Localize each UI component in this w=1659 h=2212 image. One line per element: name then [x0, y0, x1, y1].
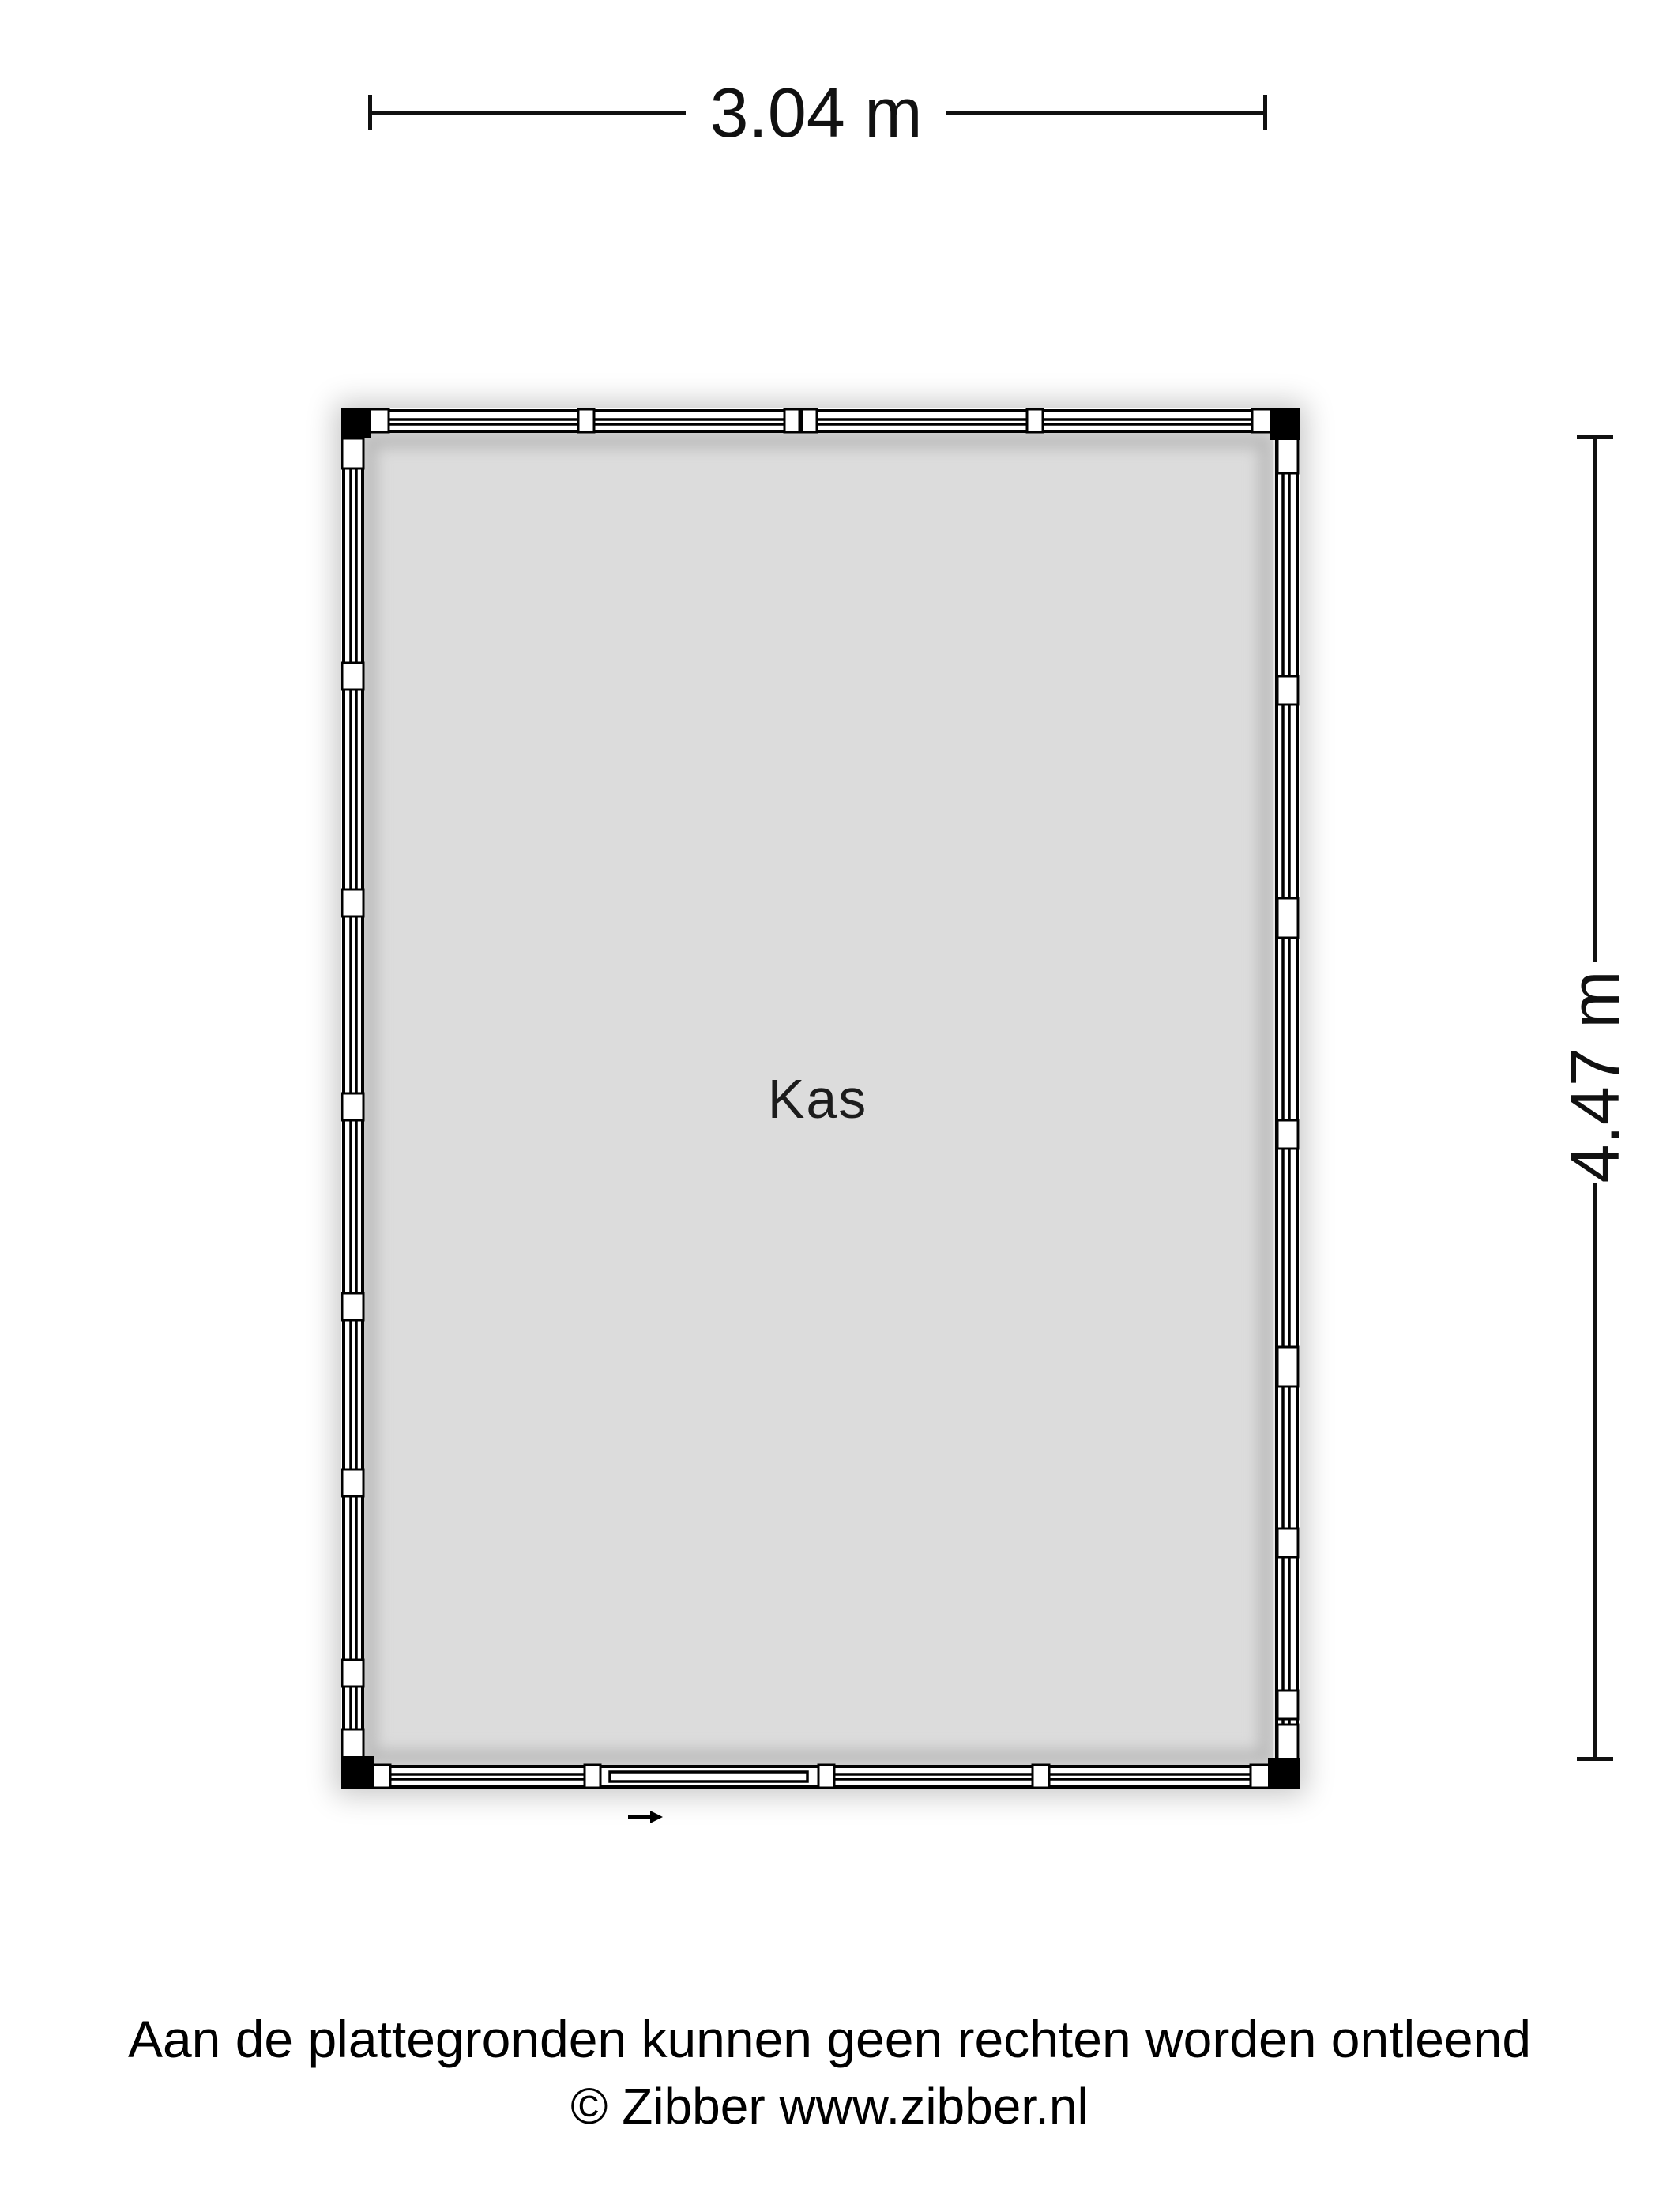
height-dimension-bottom-tick: [1577, 1757, 1613, 1761]
wall-left: [342, 437, 363, 1761]
width-dimension-line-right: [946, 111, 1264, 115]
corner-post-top-left: [341, 408, 371, 438]
corner-post-top-right: [1270, 408, 1300, 440]
footer-copyright: © Zibber www.zibber.nl: [0, 2081, 1659, 2131]
height-dimension-label: 4.47 m: [1560, 970, 1630, 1183]
corner-post-bottom-right: [1268, 1758, 1300, 1789]
width-dimension-right-tick: [1263, 95, 1267, 130]
height-dimension-line-top: [1593, 437, 1597, 962]
floor-plan-page: 3.04 m 4.47 m: [0, 0, 1659, 2212]
wall-top: [370, 409, 1271, 432]
wall-bottom: [370, 1765, 1271, 1788]
corner-post-bottom-left: [341, 1756, 374, 1789]
height-dimension-line-bottom: [1593, 1183, 1597, 1760]
room-label: Kas: [768, 1071, 868, 1127]
footer-disclaimer: Aan de plattegronden kunnen geen rechten…: [0, 2013, 1659, 2065]
width-dimension-label: 3.04 m: [709, 78, 922, 148]
wall-right: [1277, 437, 1298, 1761]
entrance-arrow-icon: [626, 1809, 664, 1825]
width-dimension-line-left: [370, 111, 686, 115]
